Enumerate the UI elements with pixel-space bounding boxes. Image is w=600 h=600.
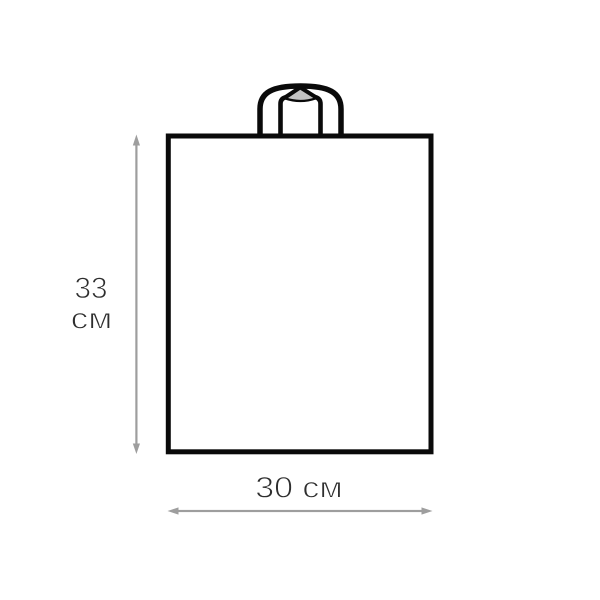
svg-text:33: 33 [75, 272, 108, 305]
svg-text:см: см [71, 302, 113, 335]
svg-text:30 см: 30 см [255, 472, 343, 505]
